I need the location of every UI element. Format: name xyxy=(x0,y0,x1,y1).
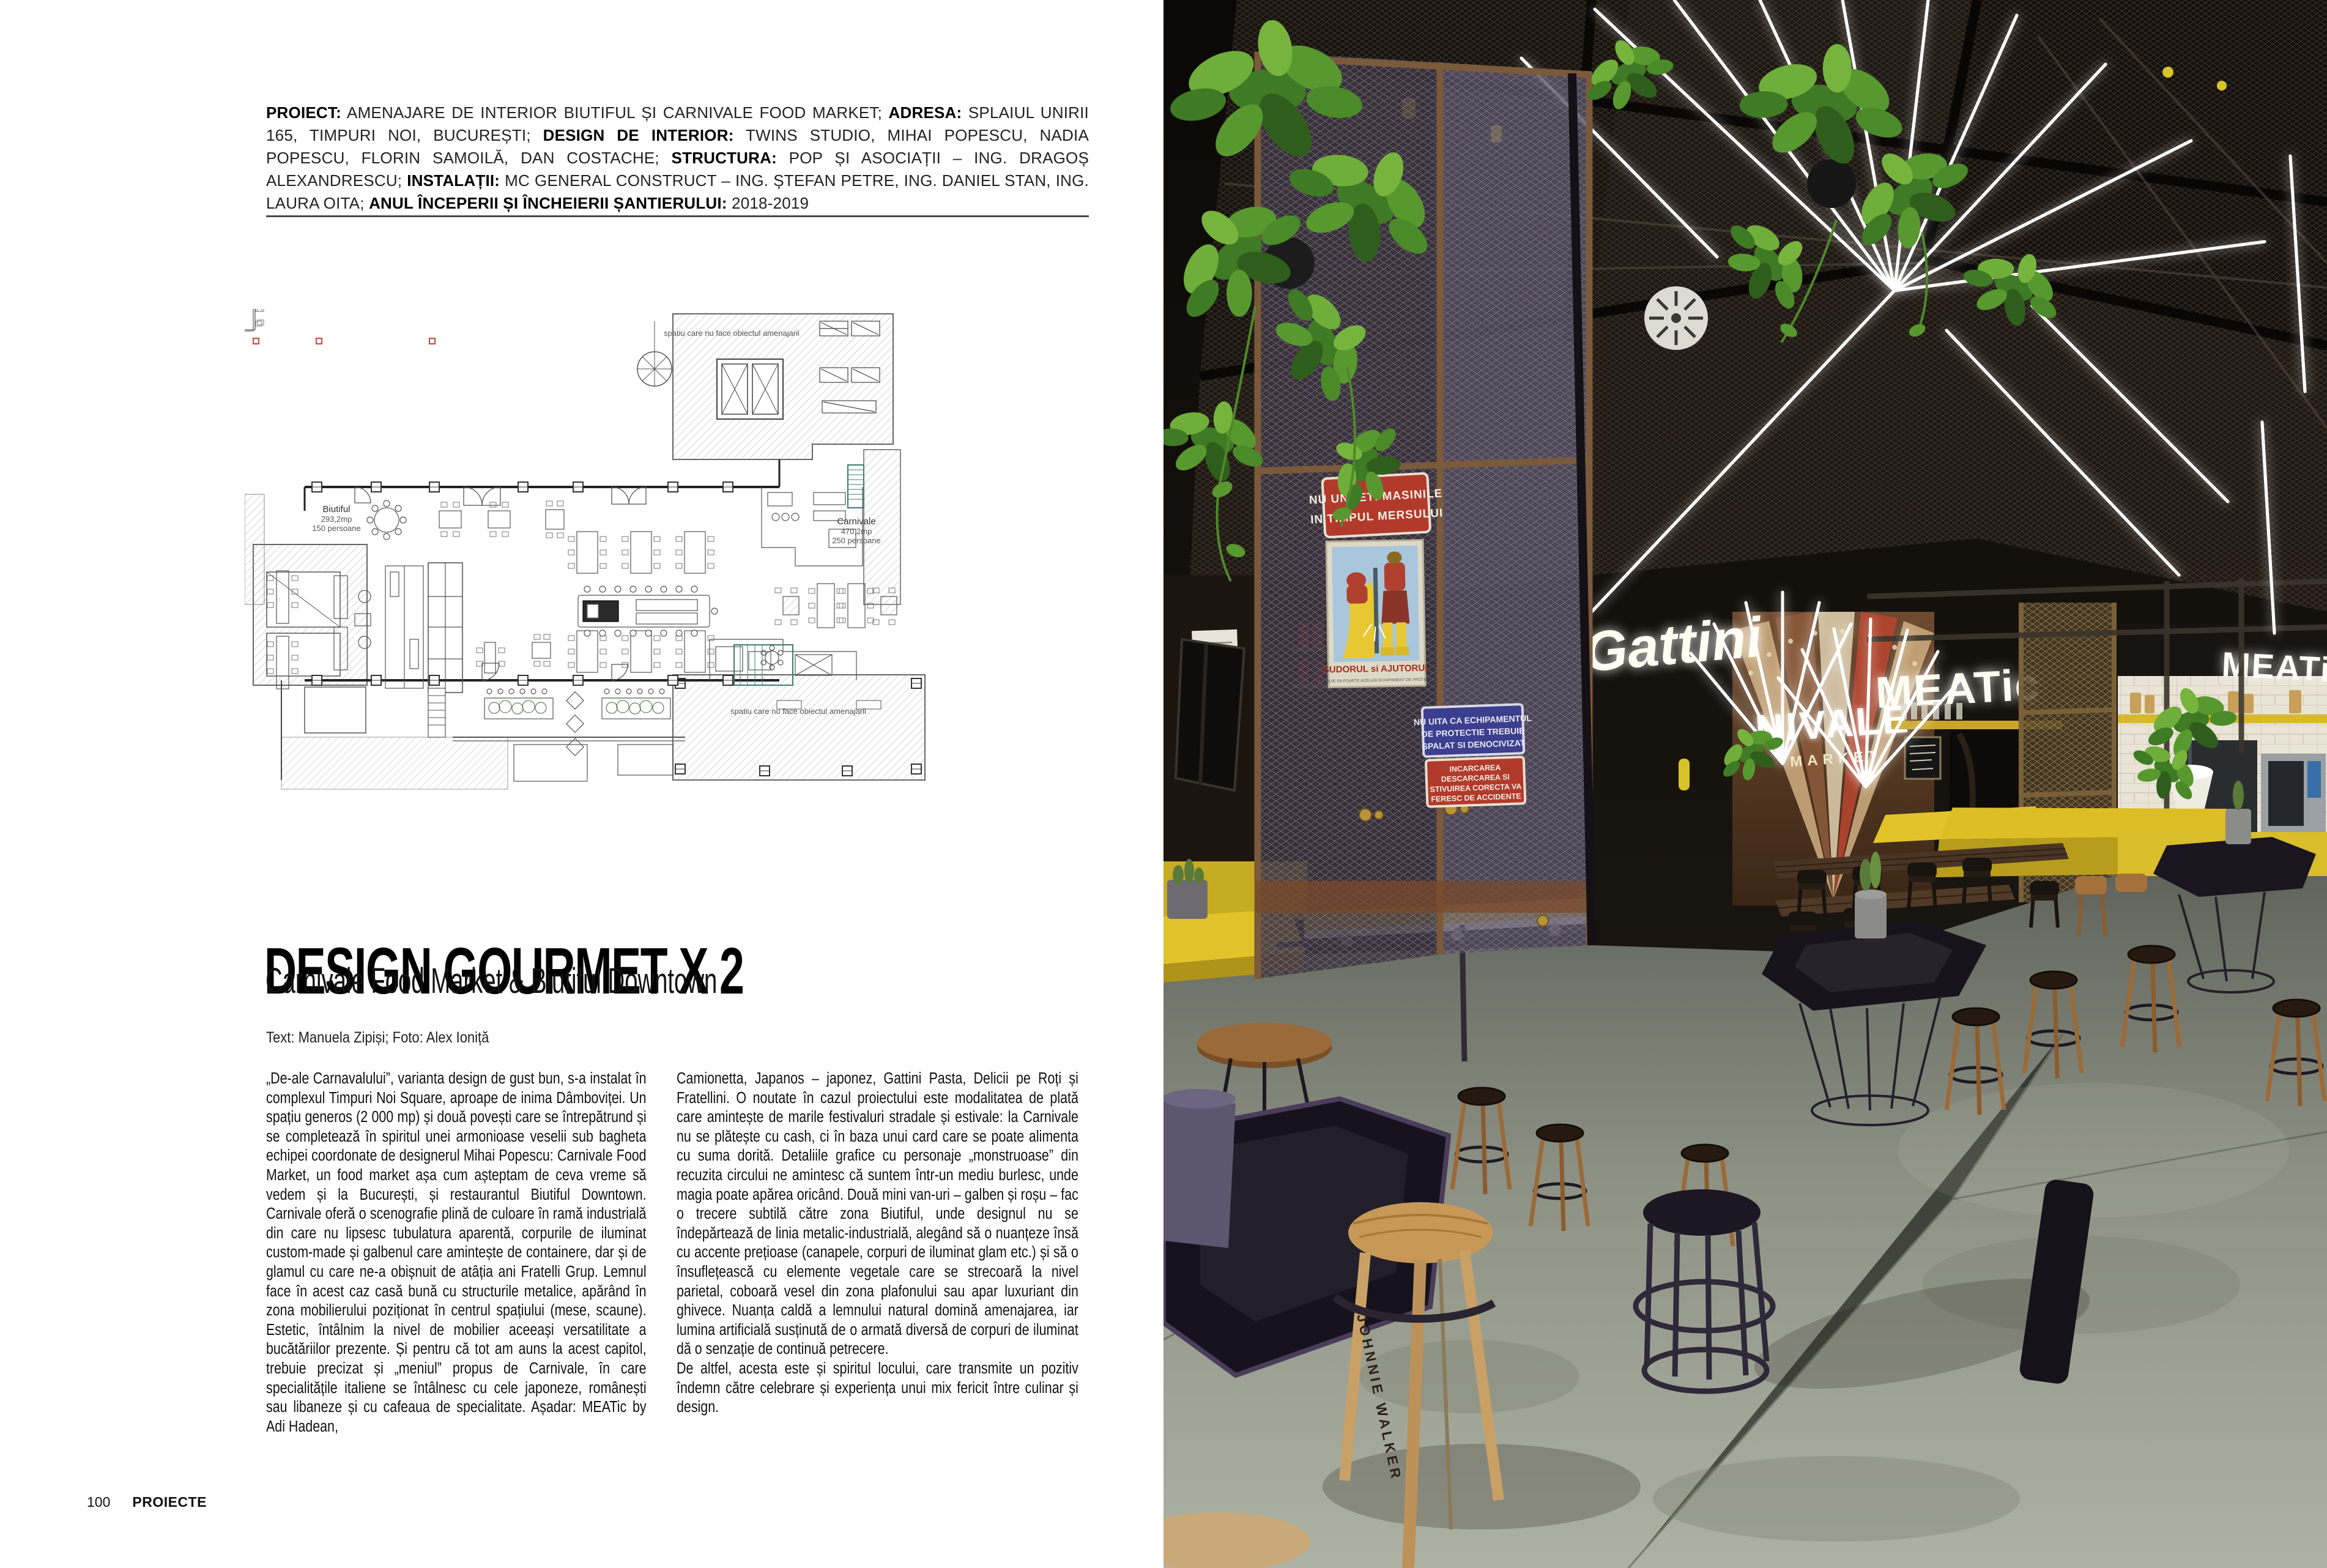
plan-label-out-of-scope-bottom: spatiu care nu face obiectul amenajarii xyxy=(730,707,866,716)
chalkboard-menu xyxy=(1905,737,1940,779)
floor-plan: spatiu care nu face obiectul amenajarii … xyxy=(245,309,942,792)
svg-text:250 persoane: 250 persoane xyxy=(832,536,881,545)
ceiling-fan-disc xyxy=(1644,286,1708,350)
credit-label: ANUL ÎNCEPERII ȘI ÎNCHEIERII ȘANTIERULUI… xyxy=(369,194,727,212)
credit-label: ADRESA: xyxy=(889,103,962,122)
credit-label: DESIGN DE INTERIOR: xyxy=(543,126,734,144)
meatic-neon-right: MEATic MEATic xyxy=(2221,645,2327,690)
sign-equipment: NU UITA CA ECHIPAMENTUL DE PROTECTIE TRE… xyxy=(1413,704,1533,757)
body-column-2: Camionetta, Japanos – japonez, Gattini P… xyxy=(677,1069,1078,1418)
plan-out-of-scope-bottom xyxy=(673,675,925,780)
svg-text:470,2mp: 470,2mp xyxy=(841,527,872,536)
svg-text:MEATic: MEATic xyxy=(2221,645,2327,690)
article-subtitle: Carnivale Food Market & Biutiful Downtow… xyxy=(265,960,717,1001)
body-column-1: „De-ale Carnavalului”, varianta design d… xyxy=(266,1069,647,1436)
credit-label: INSTALAȚII: xyxy=(407,171,500,190)
section-name: PROIECTE xyxy=(132,1494,207,1510)
page-number: 100 xyxy=(87,1494,110,1510)
floor-plan-drawing: spatiu care nu face obiectul amenajarii … xyxy=(245,309,942,792)
article-byline: Text: Manuela Zipiși; Foto: Alex Ioniță xyxy=(266,1029,489,1047)
purple-planter xyxy=(1163,1089,1236,1248)
svg-text:Carnivale: Carnivale xyxy=(837,516,875,527)
credit-value: 2018-2019 xyxy=(727,194,809,212)
rust-band xyxy=(1255,881,1592,913)
page-footer: 100PROIECTE xyxy=(87,1494,207,1510)
photo-illustration: NIVALE NIVALE MARKET Gattini Gattini MEA… xyxy=(1163,0,2327,1568)
svg-text:150 persoane: 150 persoane xyxy=(312,524,361,533)
credits-divider xyxy=(266,215,1089,217)
svg-text:Biutiful: Biutiful xyxy=(322,504,350,515)
sign-loading: INCARCAREA DESCARCAREA SI STIVUIREA CORE… xyxy=(1426,757,1526,807)
plan-label-out-of-scope-top: spatiu care nu face obiectul amenajarii xyxy=(664,329,800,338)
kitchen-area: MEATic MEATic xyxy=(2118,624,2327,835)
magazine-spread: PROIECT: AMENAJARE DE INTERIOR BIUTIFUL … xyxy=(0,0,2327,1568)
svg-text:INCARCAREA: INCARCAREA xyxy=(1449,764,1501,774)
poster-caption: SUDORUL si AJUTORUL xyxy=(1323,663,1431,675)
project-credits: PROIECT: AMENAJARE DE INTERIOR BIUTIFUL … xyxy=(266,102,1089,215)
combi-oven xyxy=(2261,754,2326,833)
vintage-poster: SUDORUL si AJUTORUL TREBUIE SA POARTE AC… xyxy=(1316,540,1436,687)
interior-photo: NIVALE NIVALE MARKET Gattini Gattini MEA… xyxy=(1163,0,2327,1568)
credit-label: PROIECT: xyxy=(266,103,341,122)
credit-value: AMENAJARE DE INTERIOR BIUTIFUL ȘI CARNIV… xyxy=(341,103,889,122)
leaning-menu-board xyxy=(1176,639,1244,790)
svg-text:293,2mp: 293,2mp xyxy=(321,515,352,524)
credit-label: STRUCTURA: xyxy=(672,149,777,167)
